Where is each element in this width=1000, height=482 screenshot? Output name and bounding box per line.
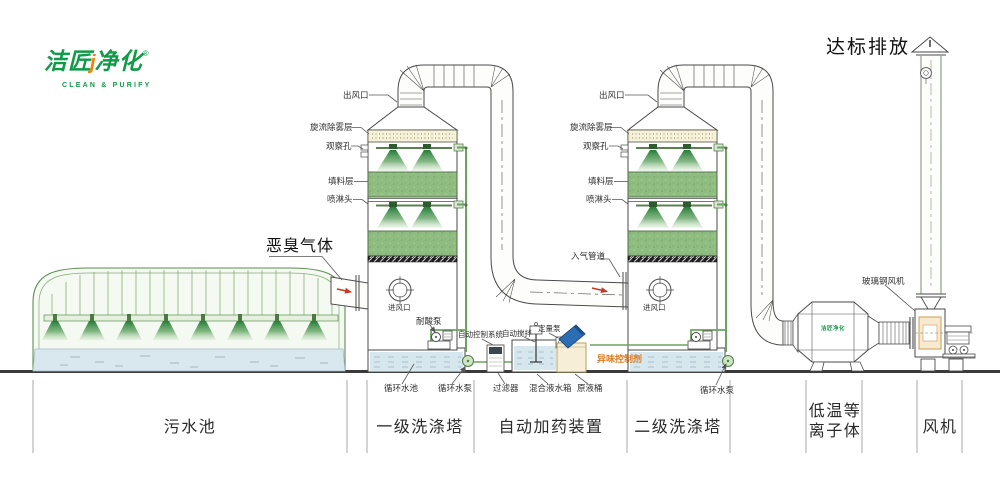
- t1-sight-hole-label: 观察孔: [326, 142, 352, 151]
- section-label-dosing: 自动加药装置: [498, 420, 603, 436]
- t2-spray-head-label: 喷淋头: [586, 195, 612, 204]
- t1-packing-label: 填料层: [328, 177, 354, 186]
- section-label-tower1: 一级洗涤塔: [376, 420, 464, 436]
- acid-pump-label: 耐酸泵: [416, 317, 442, 326]
- logo-registered-mark: ®: [143, 49, 149, 58]
- odor-agent-label: 异味控制剂: [597, 355, 642, 364]
- section-label-tower2: 二级洗涤塔: [634, 420, 722, 436]
- discharge-label: 达标排放: [826, 38, 910, 57]
- section-label-plasma: 低温等离子体: [809, 402, 862, 442]
- process-diagram: 洁匠j净化® CLEAN & PURIFY 达标排放 恶臭气体 出风口 旋流除雾…: [0, 0, 1000, 482]
- frp-fan-unit: [915, 309, 975, 371]
- metering-pump-label: 定量泵: [538, 325, 561, 333]
- logo-tagline: CLEAN & PURIFY: [62, 82, 152, 89]
- raw-barrel-label: 原液桶: [577, 384, 603, 393]
- frp-fan-label: 玻璃钢风机: [862, 277, 905, 286]
- mix-tank-label: 混合液水箱: [529, 384, 572, 393]
- t1-demister-label: 旋流除雾层: [310, 123, 353, 132]
- sewage-pool-greenhouse: [33, 268, 345, 371]
- odor-gas-label: 恶臭气体: [266, 239, 334, 255]
- filter-label: 过滤器: [493, 384, 519, 393]
- t2-outlet-label: 出风口: [599, 91, 625, 100]
- exhaust-stack: [912, 37, 948, 309]
- t2-sight-hole-label: 观察孔: [583, 142, 609, 151]
- stack-port: [921, 68, 932, 79]
- section-label-fan: 风机: [922, 420, 957, 436]
- greenhouse-ribs: [52, 270, 332, 315]
- t1-air-inlet-label: 进风口: [388, 304, 411, 312]
- inlet-duct-label: 入气管道: [571, 252, 605, 261]
- circ-pump-label-2: 循环水泵: [700, 386, 734, 395]
- t2-air-inlet-label: 进风口: [643, 304, 666, 312]
- logo: 洁匠j净化®: [44, 50, 148, 73]
- pool-water: [33, 349, 345, 371]
- t1-spray-head-label: 喷淋头: [327, 195, 353, 204]
- plasma-logo-badge: 洁匠净化: [821, 327, 845, 333]
- control-system-label: 自动控制系统: [458, 331, 503, 339]
- spray-pipe-band: [44, 315, 338, 321]
- scrubber-tower-2: [621, 107, 734, 372]
- fan-motor: [947, 332, 969, 344]
- t2-demister-label: 旋流除雾层: [570, 123, 613, 132]
- circ-pool-label: 循环水池: [384, 384, 418, 393]
- scrubber-tower-1: [361, 107, 474, 372]
- t2-packing-label: 填料层: [588, 177, 614, 186]
- plasma-unit: [783, 302, 913, 371]
- section-label-pool: 污水池: [164, 420, 217, 436]
- circ-pump-label-1: 循环水泵: [438, 384, 472, 393]
- logo-brand: 洁匠j净化: [44, 48, 143, 74]
- auto-stir-label: 自动搅拌: [502, 330, 532, 338]
- raw-liquid-container: [557, 343, 586, 372]
- t1-outlet-label: 出风口: [343, 91, 369, 100]
